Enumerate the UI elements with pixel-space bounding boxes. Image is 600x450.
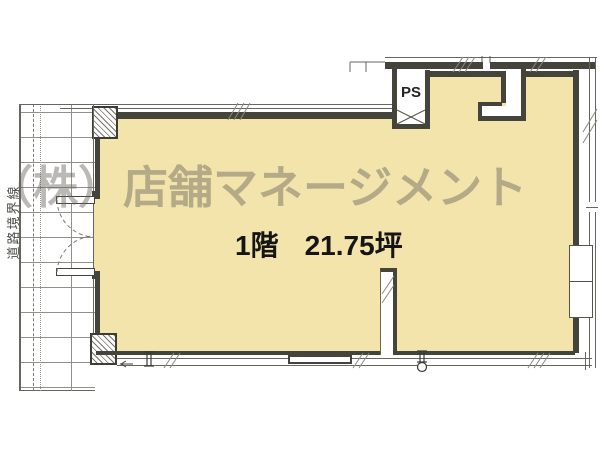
watermark-text: （株）店舗マネージメント xyxy=(0,165,600,210)
floor-label: 1階 xyxy=(235,224,279,264)
floorplan-canvas: 道路境界線 PS xyxy=(0,0,600,450)
column-symbol-center xyxy=(417,351,427,372)
column-symbol-left xyxy=(144,352,154,366)
wall-gap-ticks xyxy=(482,56,490,63)
area-label: 21.75坪 xyxy=(305,224,403,264)
door-swing-arc-bottom xyxy=(57,236,94,272)
neighbour-wall-stub xyxy=(350,62,385,72)
ps-cross-icon xyxy=(397,110,425,124)
floor-title: 1階 21.75坪 xyxy=(235,224,403,264)
entrance-arrow-icon xyxy=(120,361,133,367)
